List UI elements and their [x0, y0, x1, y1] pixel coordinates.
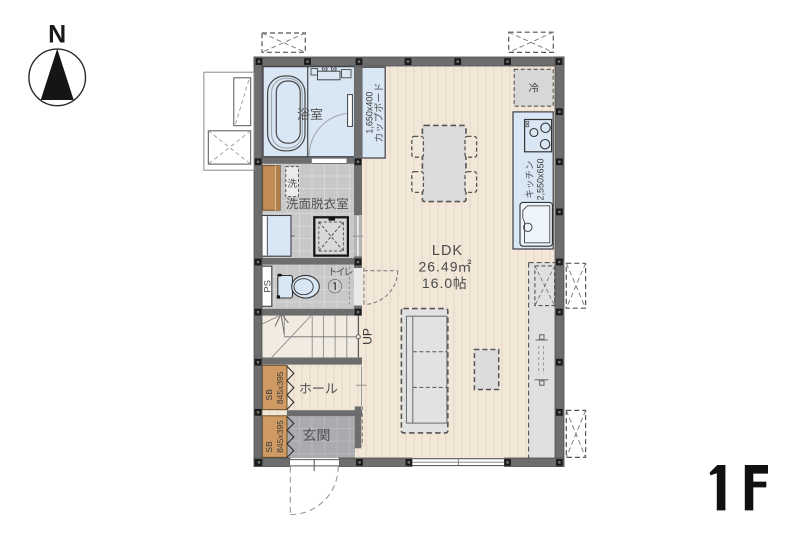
svg-text:LDK: LDK — [432, 243, 463, 259]
svg-text:N: N — [48, 21, 66, 49]
svg-text:2,550x650: 2,550x650 — [536, 158, 546, 200]
svg-text:845x395: 845x395 — [275, 420, 285, 453]
svg-text:16.0: 16.0 — [422, 275, 453, 291]
svg-text:1,650x400: 1,650x400 — [365, 92, 375, 134]
svg-text:PS: PS — [262, 280, 273, 293]
svg-text:SB: SB — [264, 389, 274, 401]
svg-text:UP: UP — [360, 328, 374, 345]
svg-text:SB: SB — [264, 441, 274, 453]
svg-text:26.49: 26.49 — [418, 259, 458, 275]
svg-text:845x395: 845x395 — [275, 371, 285, 404]
